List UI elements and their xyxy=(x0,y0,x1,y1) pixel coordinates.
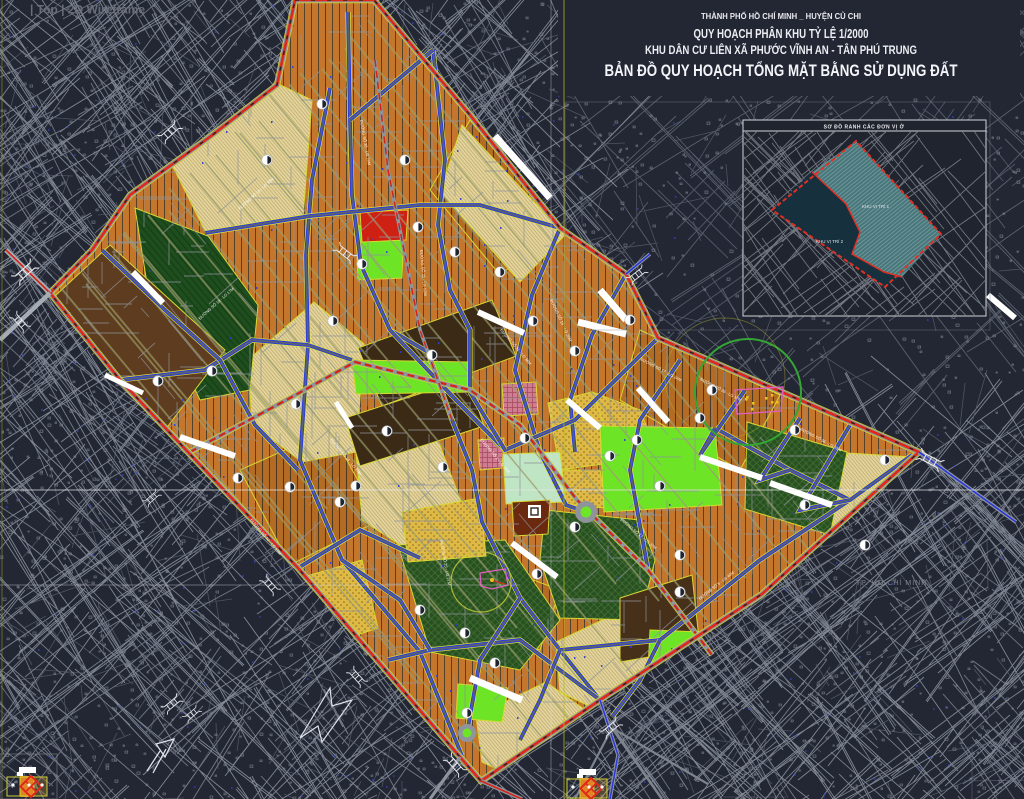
svg-text:KHU DÂN CƯ LIÊN XÃ PHƯỚC VĨNH: KHU DÂN CƯ LIÊN XÃ PHƯỚC VĨNH AN - TÂN P… xyxy=(645,44,917,57)
svg-text:SƠ ĐỒ RANH CÁC ĐƠN VỊ Ở: SƠ ĐỒ RANH CÁC ĐƠN VỊ Ở xyxy=(824,124,905,131)
svg-text:THÀNH PHỐ HỒ CHÍ MINH _ HUYỆN: THÀNH PHỐ HỒ CHÍ MINH _ HUYỆN CỦ CHI xyxy=(701,11,861,21)
svg-text:KHU VỊ TRÍ 1: KHU VỊ TRÍ 1 xyxy=(862,203,890,209)
svg-text:QUY HOẠCH PHÂN KHU TỶ LỆ 1/200: QUY HOẠCH PHÂN KHU TỶ LỆ 1/2000 xyxy=(694,26,869,41)
svg-text:| Top | 2D Wireframe: | Top | 2D Wireframe xyxy=(30,3,145,17)
svg-text:KHU VỊ TRÍ 2: KHU VỊ TRÍ 2 xyxy=(816,238,844,244)
svg-text:BẢN ĐỒ QUY HOẠCH TỔNG MẶT BẰNG: BẢN ĐỒ QUY HOẠCH TỔNG MẶT BẰNG SỬ DỤNG Đ… xyxy=(605,61,958,80)
